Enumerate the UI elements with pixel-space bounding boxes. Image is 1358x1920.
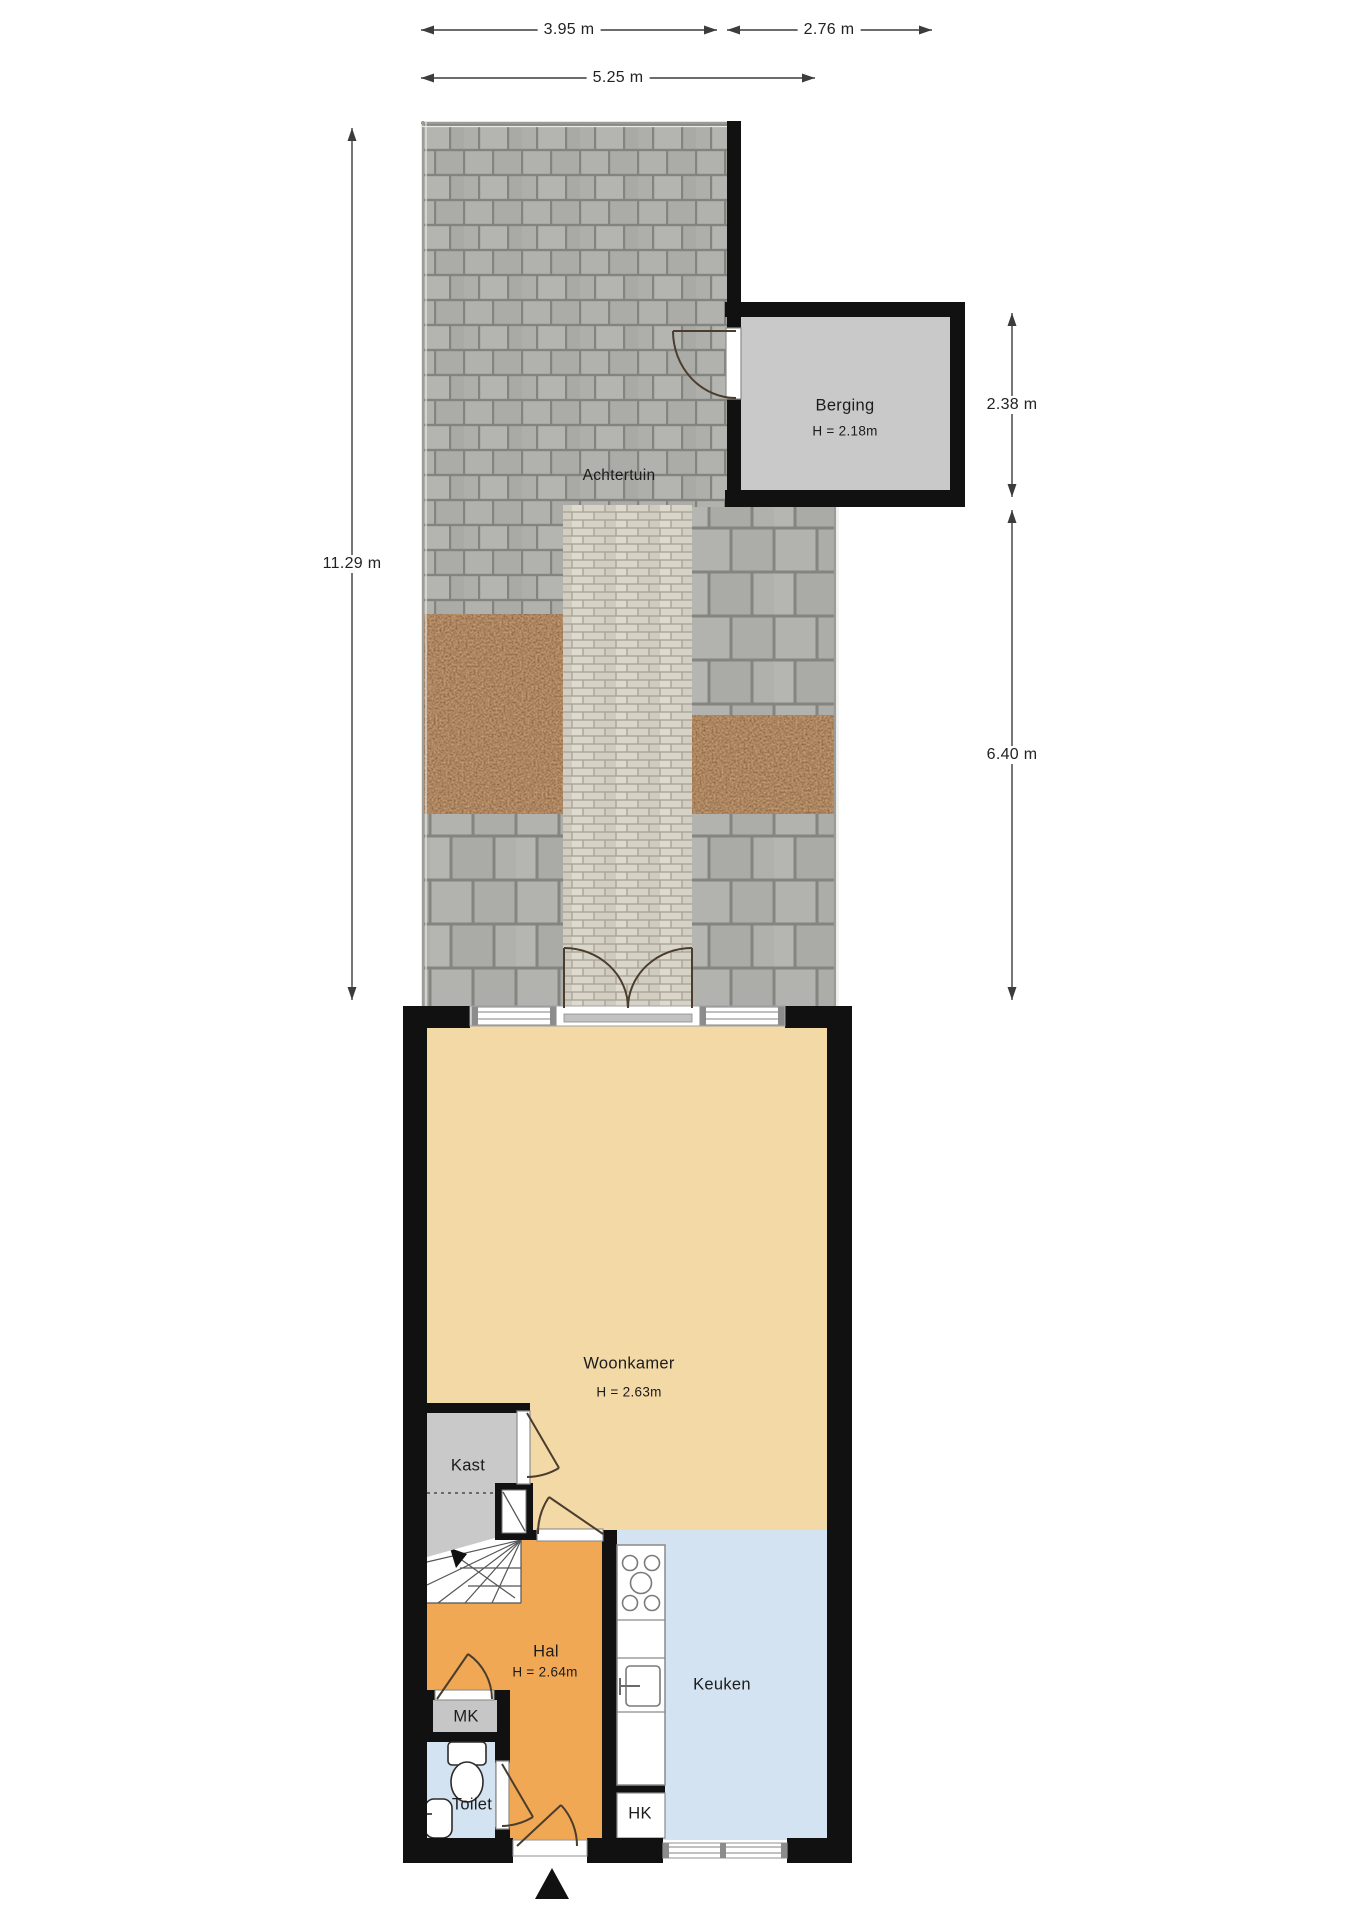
- soil-bed-right: [693, 717, 833, 812]
- dim-top-total: 5.25 m: [587, 69, 650, 87]
- garden: [421, 121, 838, 1010]
- dim-top-left: 3.95 m: [538, 21, 601, 39]
- rear-window-right: [700, 1007, 784, 1025]
- toilet-label: Toilet: [452, 1796, 492, 1815]
- woonkamer-door: [537, 1529, 603, 1541]
- front-door-sill: [513, 1840, 587, 1856]
- mk-label: MK: [453, 1708, 478, 1727]
- rear-window-left: [472, 1007, 556, 1025]
- keuken-label: Keuken: [693, 1676, 751, 1695]
- rear-door-threshold: [564, 1014, 692, 1022]
- kast-door: [517, 1411, 530, 1484]
- front-window: [663, 1843, 787, 1858]
- floorplan-drawing: [0, 0, 1358, 1920]
- garden-tiles-upper: [424, 124, 728, 507]
- mk-door: [435, 1690, 494, 1700]
- brick-path: [563, 505, 692, 1010]
- hand-basin: [425, 1799, 452, 1838]
- soil-bed-left: [427, 618, 562, 810]
- kitchen-counter: [617, 1545, 665, 1838]
- entrance-arrow: [535, 1868, 569, 1899]
- woonkamer-label: Woonkamer: [583, 1355, 674, 1374]
- garden-label: Achtertuin: [583, 467, 656, 485]
- dim-right-upper: 2.38 m: [981, 396, 1044, 414]
- floorplan-page: { "plan": { "garden_label": "Achtertuin"…: [0, 0, 1358, 1920]
- dim-top-right: 2.76 m: [798, 21, 861, 39]
- berging-height-label: H = 2.18m: [812, 424, 877, 439]
- berging-label: Berging: [816, 397, 875, 416]
- hk-label: HK: [628, 1805, 652, 1824]
- hal-height-label: H = 2.64m: [512, 1665, 577, 1680]
- berging-door: [726, 328, 741, 399]
- hal-label: Hal: [533, 1643, 559, 1662]
- woonkamer-height-label: H = 2.63m: [596, 1385, 661, 1400]
- dim-left-total: 11.29 m: [317, 555, 388, 573]
- kast-label: Kast: [451, 1457, 485, 1476]
- dim-right-lower: 6.40 m: [981, 746, 1044, 764]
